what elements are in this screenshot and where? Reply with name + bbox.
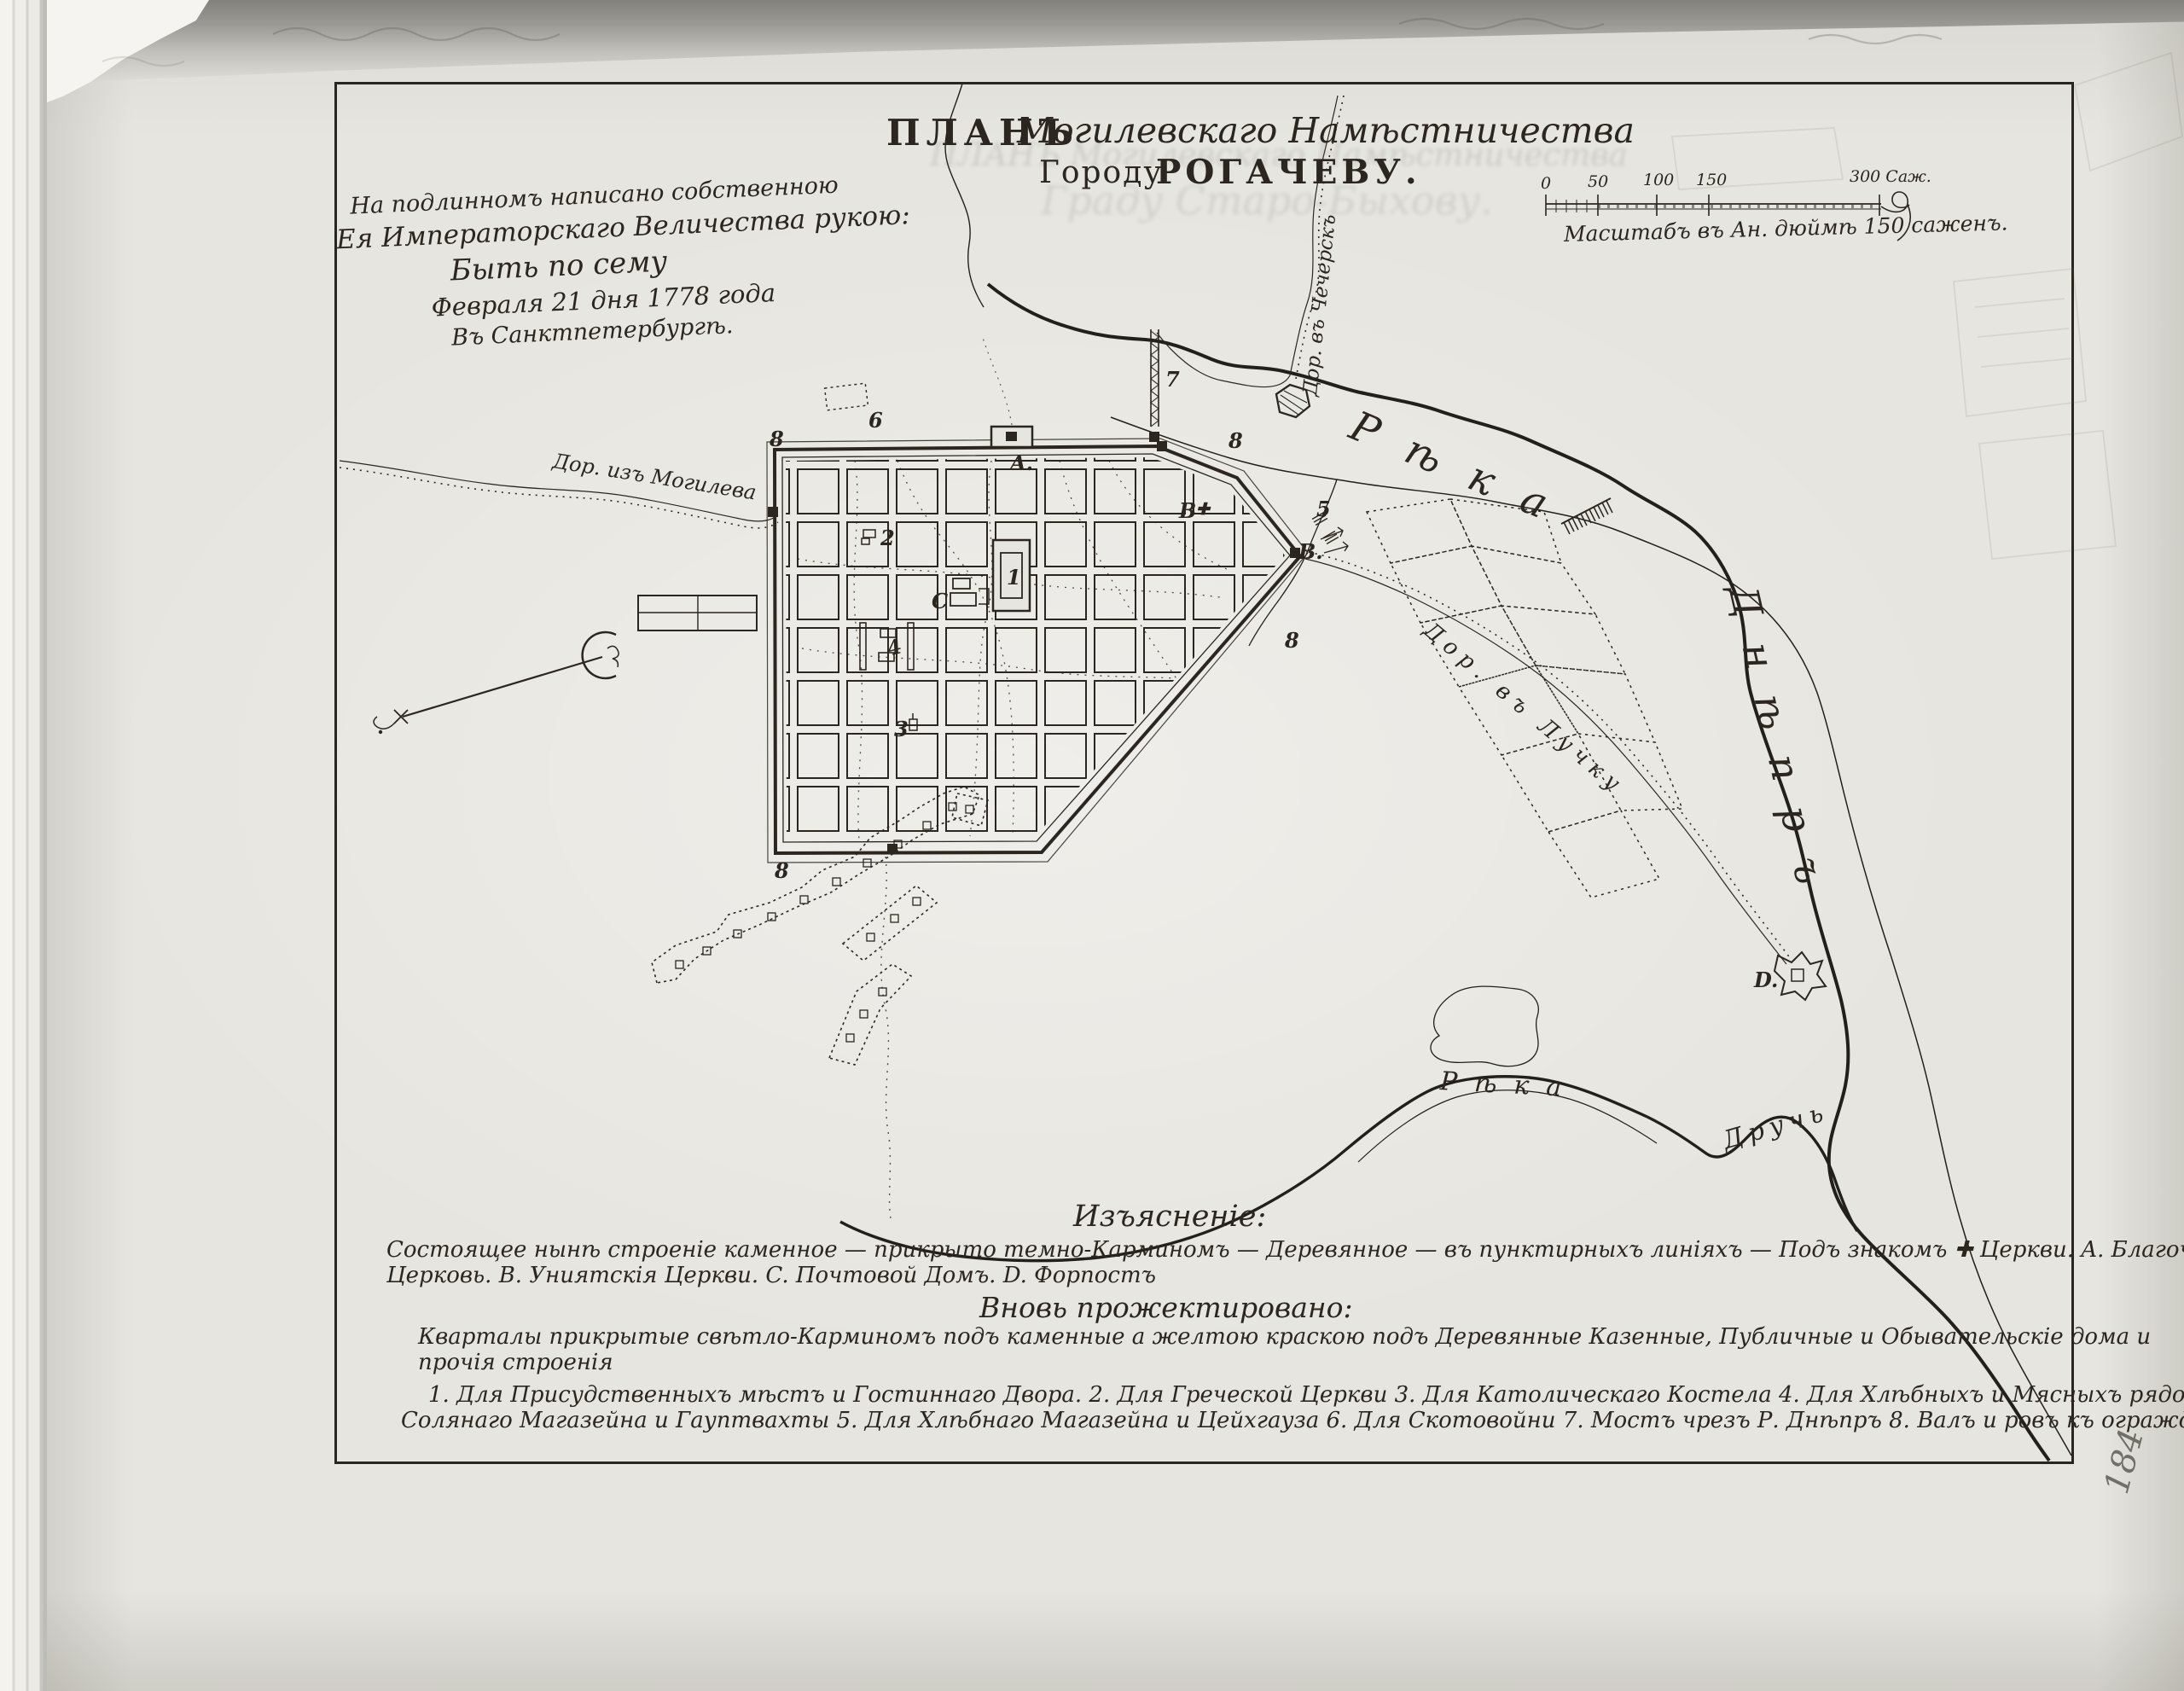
marker-1: 1 [1007, 565, 1021, 590]
river-label-druch-reka: Рѣка [1439, 1068, 1579, 1102]
compass-crescent-icon [583, 632, 616, 678]
legend-line6: Солянаго Магазейна и Гауптвахты 5. Для Х… [401, 1409, 2184, 1432]
legend-heading-projected: Вновь прожектировано: [979, 1293, 1353, 1323]
marker-5: 5 [1316, 497, 1331, 521]
marker-8-e: 8 [1285, 628, 1299, 653]
marker-b-town: B [1179, 498, 1196, 523]
scale-tick-50: 50 [1588, 172, 1608, 191]
legend-heading-explanation: Изъясненіе: [1073, 1201, 1266, 1233]
marker-b-cross-icon: ✚ [1196, 500, 1210, 519]
scanned-map-photo: ПЛАНЪ Могилевскаго Намѣстничества Граду … [0, 0, 2184, 1691]
legend-line3: Кварталы прикрытые свѣтло-Карминомъ подъ… [418, 1326, 2151, 1349]
imperial-note: На подлинномъ написано собственною Ея Им… [334, 177, 783, 328]
town-plan [767, 338, 1348, 863]
scale-tick-300: 300 Саж. [1850, 167, 1931, 186]
legend-line2: Церковь. B. Униятскія Церкви. C. Почтово… [386, 1264, 1156, 1287]
church-bastion-a [991, 427, 1032, 447]
compass-needle [374, 632, 619, 734]
marker-c-post-house: C [932, 589, 948, 613]
legend-line4: прочія строенія [418, 1351, 613, 1374]
legend-line1: Состоящее нынѣ строеніе каменное — прикр… [386, 1239, 2184, 1262]
bridge-7-over-dnieper [1151, 329, 1159, 427]
dotted-path-to-river [983, 338, 1012, 425]
marker-7: 7 [1165, 367, 1180, 392]
marker-b-east: B. [1298, 539, 1323, 564]
scale-tick-150: 150 [1696, 171, 1727, 189]
map-title-city-name: РОГАЧЕВУ. [1156, 155, 1421, 190]
trail-south-dots [881, 857, 891, 1218]
marker-3: 3 [894, 717, 909, 741]
marker-a-church: A. [1010, 450, 1033, 475]
map-title-city-lead: Городу [1039, 157, 1164, 189]
road-luchku-dots [1309, 552, 1791, 959]
scale-tick-100: 100 [1643, 171, 1674, 189]
marker-8-ne: 8 [1228, 428, 1243, 453]
marker-2: 2 [880, 526, 895, 550]
bleed-through-shapes [1672, 53, 2182, 559]
road-luchku-line [1305, 559, 1786, 964]
scale-tick-0: 0 [1541, 174, 1551, 193]
bleed-through-scribbles [102, 19, 1942, 66]
marker-6: 6 [868, 408, 883, 433]
marker-8-sw: 8 [775, 858, 789, 883]
map-linework [0, 0, 2184, 1691]
druts-river-bank [840, 1077, 1857, 1261]
marker-8-nw: 8 [770, 427, 784, 451]
marker-d-outpost: D. [1754, 968, 1778, 992]
map-title-region: Могилевскаго Намѣстничества [1017, 113, 1635, 149]
pond [1431, 986, 1538, 1066]
legend-line5: 1. Для Присудственныхъ мѣстъ и Гостиннаг… [428, 1384, 2184, 1407]
earthwork-houses [676, 803, 973, 1042]
granary-double-row [638, 596, 757, 630]
slaughterhouse-dashed-square [825, 383, 868, 410]
